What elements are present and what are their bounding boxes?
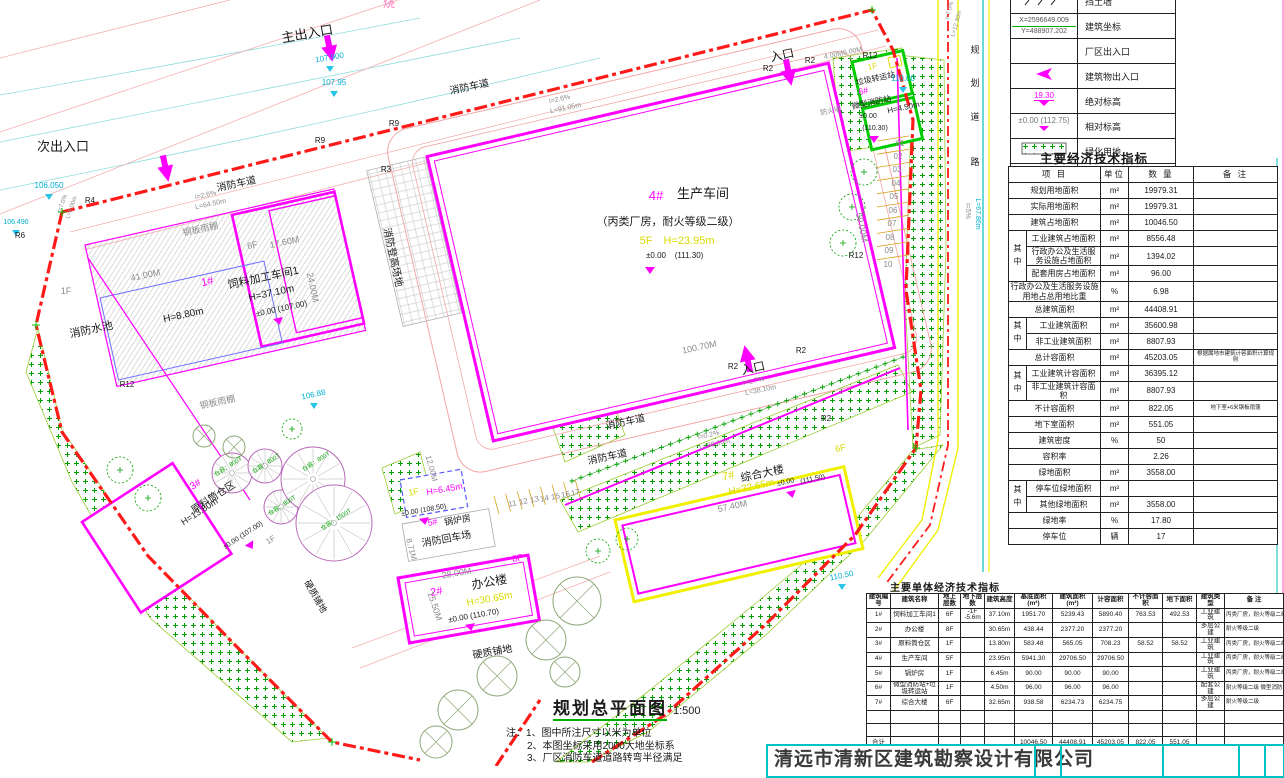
remark-cell: [1194, 465, 1278, 481]
item-cell: 建筑占地面积: [1009, 215, 1101, 231]
data-cell: 工业建筑: [1197, 637, 1225, 652]
remark-cell: 耐火等级二级 微型消防站:42.00m² 垃圾转运站:54.00m²: [1225, 681, 1284, 696]
data-cell: 5F: [939, 652, 961, 667]
unit-cell: %: [1101, 513, 1129, 529]
item-cell: 总计容面积: [1009, 349, 1101, 365]
data-cell: [961, 681, 985, 696]
qty-cell: 10046.50: [1129, 215, 1194, 231]
unit-cell: [1101, 449, 1129, 465]
col-header: 建筑高度: [985, 594, 1015, 609]
unit-cell: m²: [1101, 266, 1129, 282]
data-cell: [1129, 623, 1163, 638]
data-cell: [961, 696, 985, 711]
data-cell: 5#: [867, 667, 891, 682]
data-cell: [961, 667, 985, 682]
data-cell: 438.44: [1015, 623, 1053, 638]
data-cell: 29706.50: [1093, 652, 1129, 667]
data-cell: [961, 711, 985, 724]
building-1-feedmill: [85, 189, 366, 387]
data-cell: [1163, 696, 1197, 711]
plan-label: 5F: [640, 235, 653, 247]
data-cell: 2#: [867, 623, 891, 638]
data-cell: -1F -5.6m: [961, 608, 985, 623]
plan-label: 07: [888, 219, 897, 228]
data-cell: 8F: [939, 623, 961, 638]
plan-label: 106.490: [3, 219, 28, 226]
remark-cell: 地下室+6米钢板雨篷: [1194, 401, 1278, 417]
unit-cell: m²: [1101, 333, 1129, 349]
remark-cell: [1194, 199, 1278, 215]
notes-prefix: 注：: [506, 728, 526, 739]
data-cell: 综合大楼: [891, 696, 939, 711]
plan-label: 1F: [61, 286, 72, 296]
data-cell: [939, 724, 961, 737]
data-cell: [867, 724, 891, 737]
drawing-title-text: 规划总平面图: [553, 699, 667, 721]
data-cell: 938.58: [1015, 696, 1053, 711]
title-block-divider: [1264, 746, 1266, 776]
plan-label: R9: [315, 136, 326, 145]
elevation-marker: [326, 66, 334, 72]
parking-stall: [494, 496, 499, 514]
data-cell: [1129, 667, 1163, 682]
data-cell: 96.00: [1015, 681, 1053, 696]
data-cell: 23.95m: [985, 652, 1015, 667]
entrance-arrow: [155, 154, 176, 184]
elevation-marker: [310, 403, 318, 409]
plan-label: 04: [892, 179, 901, 188]
plan-label: 规: [970, 45, 979, 55]
data-cell: 多层公建: [1197, 623, 1225, 638]
remark-cell: [1194, 301, 1278, 317]
plan-label: 06: [889, 206, 898, 215]
data-cell: [867, 711, 891, 724]
data-cell: 2377.20: [1053, 623, 1093, 638]
data-cell: 96.00: [1093, 681, 1129, 696]
legend-label: 建筑物出入口: [1078, 64, 1176, 89]
data-cell: [1163, 724, 1197, 737]
unit-cell: m²: [1101, 465, 1129, 481]
data-cell: 90.00: [1093, 667, 1129, 682]
plan-label: 1F: [867, 61, 878, 72]
cad-sheet: { "sheet": { "drawing_title": "规划总平面图", …: [0, 0, 1284, 766]
unit-cell: 辆: [1101, 529, 1129, 545]
plan-label: H=23.95m: [663, 235, 714, 247]
plan-label: R9: [389, 119, 400, 128]
data-cell: 饲料加工车间1: [891, 608, 939, 623]
data-cell: 90.00: [1053, 667, 1093, 682]
col-header: 项 目: [1009, 167, 1101, 183]
remark-cell: [1194, 365, 1278, 381]
legend-symbol: X=2596649.009Y=488907.202: [1011, 14, 1078, 39]
legend-symbol: [1011, 39, 1078, 64]
plan-label: i=2.6%: [548, 94, 571, 105]
plan-label: R2: [805, 56, 816, 65]
data-cell: 32.65m: [985, 696, 1015, 711]
legend-label: 厂区出入口: [1078, 39, 1176, 64]
remark-cell: [1194, 266, 1278, 282]
item-cell: 实际用地面积: [1009, 199, 1101, 215]
plan-label: (111.30): [675, 251, 704, 260]
group-cell: 其中: [1009, 365, 1027, 400]
data-cell: 锅炉房: [891, 667, 939, 682]
qty-cell: 45203.05: [1129, 349, 1194, 365]
plan-label: R12: [120, 380, 135, 389]
data-cell: [961, 724, 985, 737]
item-cell: 工业建筑面积: [1027, 317, 1101, 333]
survey-cross: [868, 6, 876, 14]
building-3-silo-area: [82, 463, 231, 612]
data-cell: 30.65m: [985, 623, 1015, 638]
main-indicators-table: 项 目单位数 量备 注规划用地面积m²19979.31实际用地面积m²19979…: [1008, 166, 1278, 545]
data-cell: [1093, 724, 1129, 737]
plan-label: R6: [15, 231, 26, 240]
elevation-marker: [838, 584, 846, 590]
qty-cell: 17.80: [1129, 513, 1194, 529]
data-cell: [1015, 711, 1053, 724]
data-cell: 29706.50: [1053, 652, 1093, 667]
data-cell: 583.48: [1015, 637, 1053, 652]
legend-symbol: ±0.00 (112.75): [1011, 114, 1078, 139]
plan-label: 11: [507, 498, 518, 509]
data-cell: 办公楼: [891, 623, 939, 638]
plan-label: 09: [885, 246, 894, 255]
qty-cell: 19979.31: [1129, 183, 1194, 199]
plan-label: 8F: [511, 552, 524, 564]
data-cell: [1129, 681, 1163, 696]
col-header: 计容面积: [1093, 594, 1129, 609]
unit-cell: m²: [1101, 183, 1129, 199]
plan-label: 7#: [721, 469, 736, 483]
col-header: 备 注: [1225, 594, 1284, 609]
note-line: 1、图中所注尺寸以米为单位: [526, 728, 652, 739]
plan-label: 1F: [264, 534, 277, 547]
plan-label: 烧: [383, 0, 395, 10]
qty-cell: 35600.98: [1129, 317, 1194, 333]
item-cell: 非工业建筑计容面积: [1027, 381, 1101, 400]
remark-cell: [1194, 433, 1278, 449]
plan-label: R2: [821, 414, 832, 423]
plan-label: 路: [970, 156, 979, 167]
legend-label: 建筑坐标: [1078, 14, 1176, 39]
plan-label: (110.30): [862, 125, 888, 132]
qty-cell: 44408.91: [1129, 301, 1194, 317]
plan-label: 划: [970, 77, 979, 88]
col-header: 建筑编号: [867, 594, 891, 609]
plan-label: R2: [796, 346, 807, 355]
qty-cell: 17: [1129, 529, 1194, 545]
unit-indicators-title: 主要单体经济技术指标: [890, 579, 1000, 594]
data-cell: 工业建筑: [1197, 608, 1225, 623]
plan-label: 10: [884, 260, 893, 269]
data-cell: [891, 724, 939, 737]
col-header: 建筑类型: [1197, 594, 1225, 609]
data-cell: [1163, 667, 1197, 682]
item-cell: 工业建筑计容面积: [1027, 365, 1101, 381]
data-cell: 6234.73: [1053, 696, 1093, 711]
item-cell: 绿地率: [1009, 513, 1101, 529]
data-cell: 工业建筑: [1197, 652, 1225, 667]
data-cell: 96.00: [1053, 681, 1093, 696]
data-cell: [1129, 711, 1163, 724]
data-cell: [939, 711, 961, 724]
data-cell: 708.23: [1093, 637, 1129, 652]
plan-label: R2: [763, 64, 774, 73]
remark-cell: [1194, 282, 1278, 301]
unit-cell: %: [1101, 282, 1129, 301]
plan-label: 02: [894, 152, 903, 161]
plan-label: 01: [896, 139, 905, 148]
plan-label: 消防车道: [215, 173, 257, 194]
plan-label: 生产车间: [677, 186, 729, 201]
col-header: 数 量: [1129, 167, 1194, 183]
company-name: 清远市清新区建筑勘察设计有限公司: [768, 746, 1283, 773]
data-cell: [1129, 696, 1163, 711]
qty-cell: 551.05: [1129, 417, 1194, 433]
plan-label: L=12.30m: [951, 10, 964, 37]
plan-label: ±0.00: [859, 113, 877, 120]
qty-cell: 96.00: [1129, 266, 1194, 282]
item-cell: 建筑密度: [1009, 433, 1101, 449]
note-line: 3、厂区消防车道道路转弯半径满足: [527, 753, 683, 766]
remark-cell: [1194, 481, 1278, 497]
data-cell: [961, 623, 985, 638]
qty-cell: 2.26: [1129, 449, 1194, 465]
legend-label: 挡土墙: [1078, 0, 1176, 14]
data-cell: 5941.30: [1015, 652, 1053, 667]
plan-label: 道: [970, 111, 979, 122]
title-block-divider: [1060, 746, 1062, 776]
remark-cell: [1194, 183, 1278, 199]
data-cell: 3#: [867, 637, 891, 652]
data-cell: 1F: [939, 637, 961, 652]
plan-label: ±0.00 (107.00): [222, 520, 264, 551]
remark-cell: 根据属地市建筑计容面积计算规则: [1194, 349, 1278, 365]
data-cell: 生产车间: [891, 652, 939, 667]
item-cell: 地下室面积: [1009, 417, 1101, 433]
remark-cell: [1225, 724, 1284, 737]
remark-cell: 丙类厂房，耐火等级二级: [1225, 608, 1284, 623]
plan-label: 硬质铺地: [302, 578, 330, 615]
plan-label: i=5%: [964, 203, 971, 219]
qty-cell: 19979.31: [1129, 199, 1194, 215]
plan-label: 17: [570, 487, 581, 498]
col-header: 地下层数: [961, 594, 985, 609]
data-cell: [1015, 724, 1053, 737]
unit-cell: m²: [1101, 481, 1129, 497]
title-block-divider: [1238, 746, 1240, 776]
plan-label: 5#: [427, 516, 439, 528]
data-cell: 58.52: [1163, 637, 1197, 652]
remark-cell: [1194, 333, 1278, 349]
data-cell: 7#: [867, 696, 891, 711]
data-cell: [1163, 623, 1197, 638]
unit-cell: m²: [1101, 497, 1129, 513]
plan-label: 106.88: [301, 387, 327, 401]
data-cell: 5890.40: [1093, 608, 1129, 623]
remark-cell: 耐火等级二级: [1225, 623, 1284, 638]
elevation-marker: [330, 91, 338, 97]
data-cell: [891, 711, 939, 724]
parking-stall: [877, 255, 909, 260]
qty-cell: 6.98: [1129, 282, 1194, 301]
item-cell: 行政办公及生活服务设施用地占总用地比重: [1009, 282, 1101, 301]
plan-label: 6#: [857, 85, 869, 97]
qty-cell: 8807.93: [1129, 381, 1194, 400]
remark-cell: 丙类厂房，耐火等级二级: [1225, 637, 1284, 652]
col-header: 建筑名称: [891, 594, 939, 609]
data-cell: [1093, 711, 1129, 724]
elevation-marker: [45, 194, 53, 200]
plan-label: 106.050: [35, 181, 64, 190]
data-cell: 58.52: [1129, 637, 1163, 652]
item-cell: 行政办公及生活服务设施占地面积: [1027, 247, 1101, 266]
qty-cell: 36395.12: [1129, 365, 1194, 381]
plan-label: 6F: [834, 442, 847, 454]
data-cell: 配套公建: [1197, 681, 1225, 696]
data-cell: [985, 724, 1015, 737]
drawing-title: 规划总平面图1:500: [553, 694, 701, 719]
unit-cell: m²: [1101, 231, 1129, 247]
data-cell: 4.50m: [985, 681, 1015, 696]
item-cell: 停车位绿地面积: [1027, 481, 1101, 497]
legend-symbol: [1011, 0, 1078, 14]
unit-cell: m²: [1101, 199, 1129, 215]
qty-cell: [1129, 481, 1194, 497]
note-line: 2、本图坐标采用2000大地坐标系: [527, 741, 683, 754]
unit-indicators-table: 建筑编号建筑名称地上层数地下层数建筑高度基底面积(m²)建筑面积(m²)计容面积…: [866, 593, 1284, 750]
data-cell: 多层公建: [1197, 696, 1225, 711]
data-cell: [961, 637, 985, 652]
data-cell: 763.53: [1129, 608, 1163, 623]
col-header: 基底面积(m²): [1015, 594, 1053, 609]
col-header: 单位: [1101, 167, 1129, 183]
unit-cell: m²: [1101, 365, 1129, 381]
plan-label: 03: [893, 165, 902, 174]
data-cell: [1053, 711, 1093, 724]
plan-label: 107.95: [322, 78, 347, 87]
qty-cell: 1394.02: [1129, 247, 1194, 266]
data-cell: 13.80m: [985, 637, 1015, 652]
unit-cell: m²: [1101, 317, 1129, 333]
data-cell: 工业建筑: [1197, 667, 1225, 682]
plan-label: 05: [890, 192, 899, 201]
unit-cell: m²: [1101, 301, 1129, 317]
legend-label: 绝对标高: [1078, 89, 1176, 114]
item-cell: 不计容面积: [1009, 401, 1101, 417]
remark-cell: [1194, 497, 1278, 513]
unit-cell: %: [1101, 433, 1129, 449]
unit-cell: m²: [1101, 215, 1129, 231]
item-cell: 容积率: [1009, 449, 1101, 465]
notes: 注：1、图中所注尺寸以米为单位 2、本图坐标采用2000大地坐标系 3、厂区消防…: [506, 728, 683, 766]
data-cell: 2377.20: [1093, 623, 1129, 638]
remark-cell: [1194, 449, 1278, 465]
data-cell: 492.53: [1163, 608, 1197, 623]
data-cell: [961, 652, 985, 667]
item-cell: 绿地面积: [1009, 465, 1101, 481]
remark-cell: [1194, 231, 1278, 247]
data-cell: [1197, 711, 1225, 724]
level-marker: [245, 540, 257, 551]
item-cell: 非工业建筑面积: [1027, 333, 1101, 349]
plan-label: 12: [518, 496, 529, 507]
remark-cell: [1194, 529, 1278, 545]
data-cell: 1#: [867, 608, 891, 623]
unit-cell: m²: [1101, 247, 1129, 266]
data-cell: [1163, 711, 1197, 724]
qty-cell: 822.05: [1129, 401, 1194, 417]
remark-cell: 耐火等级二级: [1225, 696, 1284, 711]
plan-label: 08: [886, 233, 895, 242]
data-cell: 4#: [867, 652, 891, 667]
plan-label: ±0.00: [646, 251, 667, 260]
remark-cell: [1194, 247, 1278, 266]
data-cell: [1053, 724, 1093, 737]
col-header: 不计容面积: [1129, 594, 1163, 609]
data-cell: 6F: [939, 696, 961, 711]
data-cell: 37.10m: [985, 608, 1015, 623]
item-cell: 工业建筑占地面积: [1027, 231, 1101, 247]
group-cell: 其中: [1009, 481, 1027, 513]
title-block: 清远市清新区建筑勘察设计有限公司: [766, 744, 1284, 778]
col-header: 地上层数: [939, 594, 961, 609]
item-cell: 停车位: [1009, 529, 1101, 545]
data-cell: 1F: [939, 681, 961, 696]
legend-symbol: [1011, 64, 1078, 89]
data-cell: [1163, 652, 1197, 667]
plan-label: R3: [381, 165, 392, 174]
qty-cell: 8807.93: [1129, 333, 1194, 349]
plan-label: （丙类厂房，耐火等级二级）: [597, 214, 740, 228]
plan-label: 次出入口: [37, 139, 89, 154]
data-cell: 565.05: [1053, 637, 1093, 652]
data-cell: 6.45m: [985, 667, 1015, 682]
legend-label: 相对标高: [1078, 114, 1176, 139]
remark-cell: [1194, 381, 1278, 400]
data-cell: [1163, 681, 1197, 696]
group-cell: 其中: [1009, 317, 1027, 349]
item-cell: 总建筑面积: [1009, 301, 1101, 317]
col-header: 建筑面积(m²): [1053, 594, 1093, 609]
unit-cell: m²: [1101, 401, 1129, 417]
plan-label: i=7.0%: [945, 0, 956, 20]
unit-cell: m²: [1101, 381, 1129, 400]
qty-cell: 3558.00: [1129, 497, 1194, 513]
plan-label: 消防车道: [448, 76, 490, 97]
plan-label: R12: [863, 51, 878, 60]
survey-cross: [32, 321, 40, 329]
data-cell: 1951.70: [1015, 608, 1053, 623]
qty-cell: 8556.48: [1129, 231, 1194, 247]
unit-cell: m²: [1101, 417, 1129, 433]
qty-cell: 50: [1129, 433, 1194, 449]
item-cell: 规划用地面积: [1009, 183, 1101, 199]
plan-label: R2: [728, 362, 739, 371]
data-cell: [1129, 724, 1163, 737]
data-cell: [1197, 724, 1225, 737]
remark-cell: 丙类厂房，耐火等级二级: [1225, 667, 1284, 682]
remark-cell: [1225, 711, 1284, 724]
plan-label: L=67.86m: [974, 198, 981, 229]
plan-label: R12: [849, 251, 864, 260]
qty-cell: 3558.00: [1129, 465, 1194, 481]
remark-cell: [1194, 317, 1278, 333]
remark-cell: 丙类厂房，耐火等级二级: [1225, 652, 1284, 667]
title-block-divider: [1162, 746, 1164, 776]
remark-cell: [1194, 215, 1278, 231]
data-cell: 微型消防站+垃圾转运站: [891, 681, 939, 696]
